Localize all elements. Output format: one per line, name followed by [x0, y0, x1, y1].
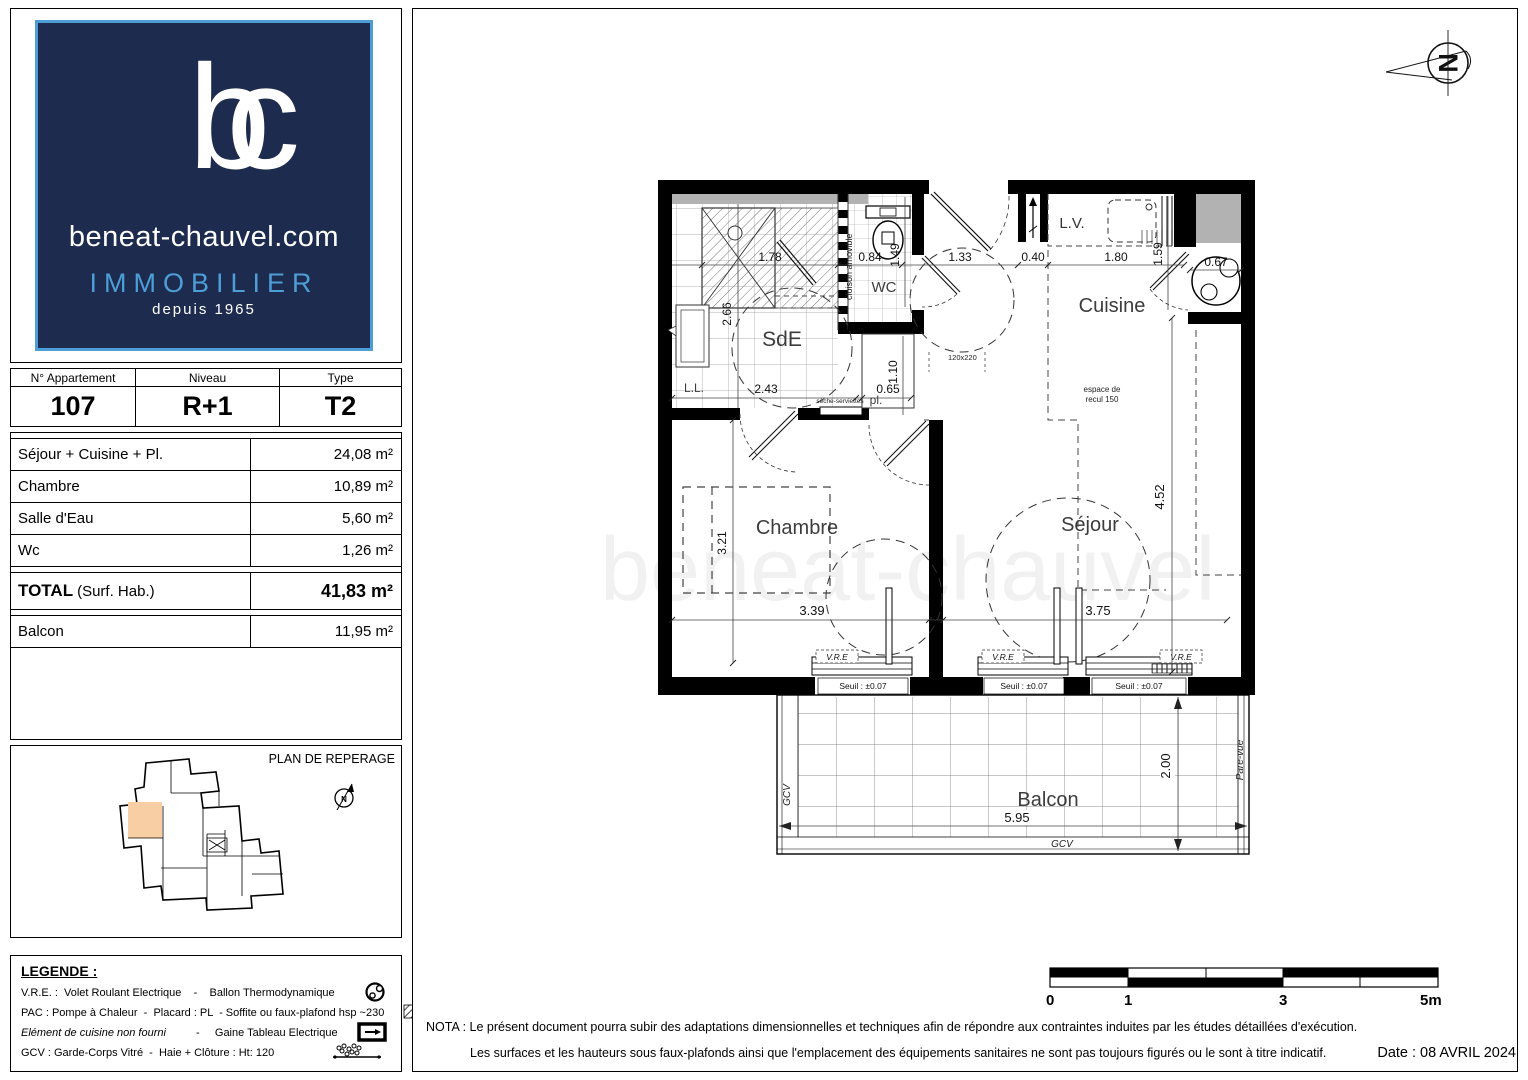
apt-header-level: Niveau	[136, 369, 280, 387]
legend-line-vre: V.R.E. : Volet Roulant Electrique - Ball…	[21, 983, 391, 1003]
surface-label: Salle d'Eau	[11, 503, 250, 534]
room-label-sde: SdE	[762, 328, 802, 351]
apt-header-number: N° Appartement	[11, 369, 136, 387]
dim-133: 1.33	[948, 250, 972, 264]
legend-title: LEGENDE :	[21, 963, 391, 979]
legend-box: LEGENDE : V.R.E. : Volet Roulant Electri…	[10, 955, 402, 1072]
room-label-chambre: Chambre	[756, 517, 838, 539]
parevue-label: Pare-vue	[1235, 739, 1246, 780]
logo-monogram: bc	[188, 23, 256, 219]
room-label-sejour: Séjour	[1061, 514, 1119, 536]
scale-bar-labels: 0 1 3 5m	[1046, 992, 1442, 1009]
towel-dryer	[820, 407, 862, 415]
dim-159: 1.59	[1151, 242, 1165, 266]
total-paren: (Surf. Hab.)	[77, 583, 155, 600]
dim-375: 3.75	[1085, 603, 1110, 618]
dim-067: 0.67	[1204, 255, 1228, 269]
floor-plan-drawing: beneat-chauvel N	[413, 9, 1517, 1071]
dim-339: 3.39	[799, 603, 824, 618]
total-value: 41,83 m²	[250, 573, 401, 609]
espace-recul-label-2: recul 150	[1086, 395, 1119, 404]
haie-cloture-icon	[313, 1031, 387, 1076]
legend-text-italic: Elément de cuisine non fourni	[21, 1027, 166, 1039]
svg-text:N: N	[1433, 53, 1463, 73]
scale-bar	[1050, 968, 1438, 987]
floor-plan-panel: beneat-chauvel N	[412, 8, 1518, 1072]
gcv-label-bottom: GCV	[1051, 839, 1074, 850]
seuil-label: Seuil : ±0.07	[1115, 681, 1162, 691]
seuil-label: Seuil : ±0.07	[839, 681, 886, 691]
gaine-electrique-symbol	[1029, 197, 1037, 238]
vre-label: V.R.E	[826, 652, 848, 662]
label-ll: L.L.	[684, 381, 704, 395]
surface-label: Séjour + Cuisine + Pl.	[11, 439, 250, 470]
date-label: Date : 08 AVRIL 2024	[1377, 1045, 1516, 1061]
total-label: TOTAL	[18, 581, 73, 601]
dim-178: 1.78	[758, 250, 782, 264]
scale-1: 1	[1124, 992, 1132, 1009]
table-row: Salle d'Eau 5,60 m²	[11, 503, 401, 535]
cloison-label: cloison amovible	[844, 233, 854, 300]
highlighted-unit	[128, 802, 162, 838]
legend-text: GCV : Garde-Corps Vitré - Haie + Clôture…	[21, 1047, 274, 1059]
room-label-balcon: Balcon	[1017, 789, 1078, 811]
vre-label: V.R.E	[992, 652, 1014, 662]
dim-149: 1.49	[888, 243, 902, 267]
lave-vaisselle-label: L.V.	[1059, 215, 1084, 232]
apt-header-type: Type	[280, 369, 401, 387]
reperage-title: PLAN DE REPERAGE	[269, 752, 395, 766]
minimap-compass-icon: N	[335, 784, 354, 810]
apt-type: T2	[280, 387, 401, 426]
balcon-value: 11,95 m²	[250, 616, 401, 647]
nota-line-1: NOTA : Le présent document pourra subir …	[426, 1020, 1357, 1034]
dim-266: 2.66	[720, 302, 734, 326]
surfaces-table: Séjour + Cuisine + Pl. 24,08 m² Chambre …	[10, 432, 402, 740]
legend-line-gcv: GCV : Garde-Corps Vitré - Haie + Clôture…	[21, 1043, 391, 1063]
surface-value: 1,26 m²	[250, 535, 401, 566]
legend-text: PAC : Pompe à Chaleur - Placard : PL - S…	[21, 1007, 384, 1019]
sde-door	[740, 411, 798, 472]
entrance-door	[931, 192, 1009, 251]
dim-180: 1.80	[1104, 250, 1128, 264]
agency-since: depuis 1965	[152, 301, 256, 318]
scale-0: 0	[1046, 992, 1054, 1009]
location-minimap: PLAN DE REPERAGE N	[11, 746, 401, 937]
dim-065: 0.65	[876, 382, 900, 396]
agency-logo: bc beneat-chauvel.com IMMOBILIER depuis …	[35, 20, 373, 351]
dim-200: 2.00	[1158, 753, 1173, 778]
agency-domain: beneat-chauvel.com	[69, 221, 339, 254]
dim-243: 2.43	[754, 382, 778, 396]
legend-text: V.R.E. : Volet Roulant Electrique - Ball…	[21, 987, 335, 999]
surface-value: 5,60 m²	[250, 503, 401, 534]
dim-595: 5.95	[1004, 810, 1029, 825]
passage-label: 120x220	[948, 353, 977, 362]
svg-text:N: N	[341, 795, 347, 804]
surface-value: 10,89 m²	[250, 471, 401, 502]
espace-recul-label-1: espace de	[1084, 385, 1121, 394]
balcon-label: Balcon	[11, 616, 250, 647]
watermark: beneat-chauvel	[600, 520, 1215, 620]
chambre-door	[869, 421, 929, 485]
dim-040: 0.40	[1021, 250, 1045, 264]
table-row: Chambre 10,89 m²	[11, 471, 401, 503]
room-label-cuisine: Cuisine	[1079, 295, 1146, 317]
dim-110: 1.10	[886, 360, 900, 384]
table-row: Séjour + Cuisine + Pl. 24,08 m²	[11, 439, 401, 471]
legend-line-pac: PAC : Pompe à Chaleur - Placard : PL - S…	[21, 1003, 391, 1023]
scale-5m: 5m	[1420, 992, 1442, 1009]
apt-level: R+1	[136, 387, 280, 426]
surface-label: Wc	[11, 535, 250, 566]
location-plan-box: PLAN DE REPERAGE N	[10, 745, 402, 938]
nota-line-2: Les surfaces et les hauteurs sous faux-p…	[470, 1046, 1326, 1060]
room-label-wc: WC	[872, 279, 897, 296]
scale-3: 3	[1279, 992, 1287, 1009]
total-row: TOTAL(Surf. Hab.) 41,83 m²	[11, 573, 401, 610]
table-row: Wc 1,26 m²	[11, 535, 401, 567]
dim-084: 0.84	[858, 250, 882, 264]
agency-logo-box: bc beneat-chauvel.com IMMOBILIER depuis …	[10, 8, 402, 363]
surface-value: 24,08 m²	[250, 439, 401, 470]
apartment-info-table: N° Appartement Niveau Type 107 R+1 T2	[10, 368, 402, 427]
apt-number: 107	[11, 387, 136, 426]
surface-label: Chambre	[11, 471, 250, 502]
seuil-label: Seuil : ±0.07	[1000, 681, 1047, 691]
north-compass-icon: N	[1386, 30, 1471, 96]
vre-label: V.R.E	[1170, 652, 1192, 662]
dim-452: 4.52	[1152, 484, 1167, 509]
gcv-label-left: GCV	[782, 783, 793, 806]
dim-321: 3.21	[715, 531, 729, 555]
balcon-row: Balcon 11,95 m²	[11, 616, 401, 648]
agency-tagline: IMMOBILIER	[89, 268, 318, 299]
